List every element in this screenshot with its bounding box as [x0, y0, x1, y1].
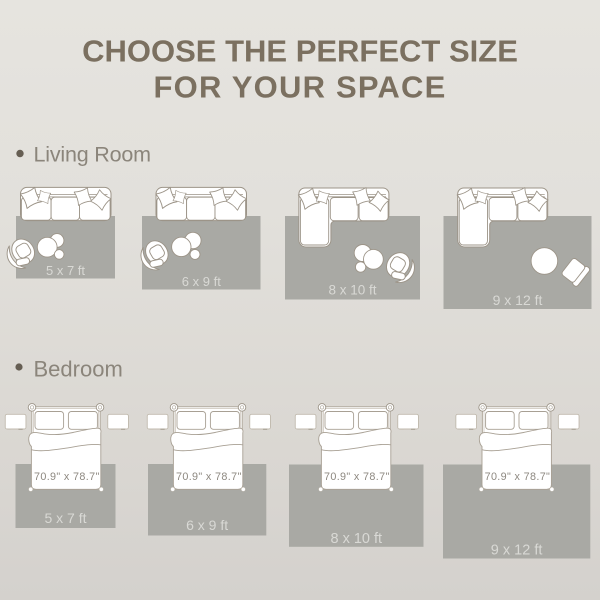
- svg-text:9 x 12 ft: 9 x 12 ft: [493, 292, 543, 308]
- svg-text:Living Room: Living Room: [34, 143, 151, 167]
- svg-text:6 x 9 ft: 6 x 9 ft: [182, 274, 221, 289]
- svg-text:6 x 9 ft: 6 x 9 ft: [186, 517, 228, 533]
- svg-text:5 x 7 ft: 5 x 7 ft: [46, 263, 85, 278]
- svg-text:5 x 7 ft: 5 x 7 ft: [44, 510, 86, 526]
- svg-text:8 x 10 ft: 8 x 10 ft: [328, 282, 376, 297]
- svg-text:9 x 12 ft: 9 x 12 ft: [491, 543, 543, 559]
- svg-text:Bedroom: Bedroom: [34, 357, 123, 382]
- svg-text:CHOOSE THE PERFECT SIZE: CHOOSE THE PERFECT SIZE: [82, 34, 518, 69]
- svg-text:FOR YOUR SPACE: FOR YOUR SPACE: [154, 70, 447, 105]
- svg-text:8 x 10 ft: 8 x 10 ft: [331, 531, 383, 547]
